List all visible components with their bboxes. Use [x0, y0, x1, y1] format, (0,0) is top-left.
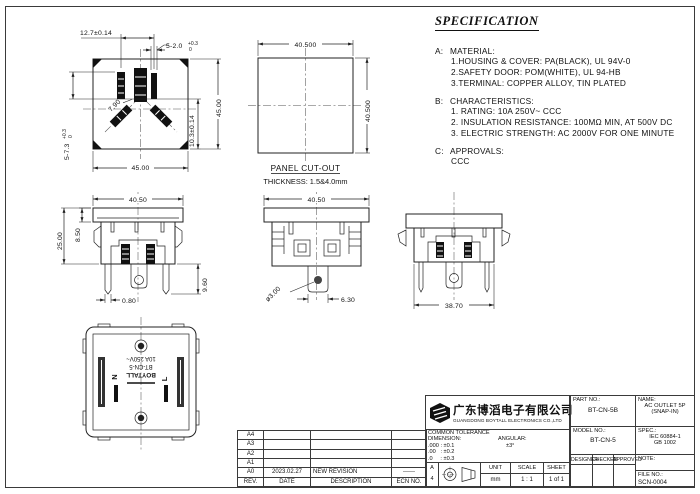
spec-section-b: B:CHARACTERISTICS: [435, 96, 691, 106]
spec-std-value-2: GB 1002 [636, 440, 694, 446]
date-cell [264, 449, 311, 458]
spec-heading-c: APPROVALS: [450, 146, 504, 156]
file-no-cell: FILE NO.: SCN-0004 [635, 470, 695, 487]
dim-label: 45.00 [131, 165, 149, 172]
dim-label: 8.50 [75, 228, 82, 242]
ecn-cell [392, 458, 427, 467]
rev-cell: A0 [238, 468, 264, 477]
specification-block: SPECIFICATION A:MATERIAL: 1.HOUSING & CO… [435, 12, 691, 167]
file-no-value: SCN-0004 [636, 478, 694, 486]
company-logo-icon [429, 402, 451, 424]
tolerance-cell: COMMON TOLERANCE DIMENSION:ANGULAR: .000… [425, 429, 570, 463]
rev-cell: A2 [238, 449, 264, 458]
model-no-value: BT-CN-5 [571, 437, 635, 444]
revision-table: A4 A3 A2 A1 A02023.02.27NEW REVISION----… [237, 430, 427, 487]
part-no-cell: PART NO.: BT-CN-5B [570, 395, 636, 427]
rating-marking: 10A 250V~ [126, 355, 156, 361]
model-no-cell: MODEL NO.: BT-CN-5 [570, 426, 636, 455]
signoff-cell: DESIGNER CHECKED APPROVED [570, 454, 636, 487]
rev-header: REV. [238, 477, 264, 486]
spec-item: 3.TERMINAL: COPPER ALLOY, TIN PLATED [451, 78, 691, 89]
dim-label: 40.50 [307, 197, 325, 204]
table-header-row: REV.DATEDESCRIPTIONECN NO. [238, 477, 427, 486]
tol-row-1: .000 : ±0.1 [428, 443, 454, 449]
divider [592, 465, 593, 486]
dim-label: 7.90 [107, 99, 122, 114]
dim-tolerance: 0 [189, 47, 192, 53]
dimension-label: DIMENSION: [428, 436, 461, 442]
dim-label: 5-7.3 [64, 143, 71, 160]
specification-title: SPECIFICATION [435, 14, 539, 31]
unit-label: UNIT [481, 463, 510, 474]
panel-cutout-label: PANEL CUT-OUT [271, 164, 341, 173]
part-no-label: PART NO.: [571, 396, 635, 403]
unit-value: mm [481, 474, 510, 486]
spec-label-c: C: [435, 146, 450, 156]
dim-label: 45.00 [216, 99, 223, 117]
spec-heading-b: CHARACTERISTICS: [450, 96, 534, 106]
date-header: DATE [264, 477, 311, 486]
checked-label: CHECKED [592, 455, 614, 465]
front-view-drawing: 12.7±0.14 5-2.0 +0.3 0 5-7.3 +0.3 0 10.3… [35, 16, 260, 194]
desc-cell [311, 458, 392, 467]
panel-cutout-drawing: 40.500 40.500 PANEL CUT-OUT THICKNESS: 1… [243, 28, 388, 190]
dim-tolerance: 0 [68, 135, 74, 138]
paper-size-top: A [426, 463, 438, 474]
company-cell: 广东博滔电子有限公司 GUANGDONG BOYTALL ELECTRONICS… [425, 395, 570, 430]
paper-size-bottom: 4 [426, 474, 438, 485]
desc-cell [311, 431, 392, 440]
ecn-cell: ------ [392, 468, 427, 477]
ecn-cell [392, 449, 427, 458]
projection-cell [438, 462, 481, 487]
spec-section-c: C:APPROVALS: [435, 146, 691, 156]
spec-std-cell: SPEC.: IEC 60884-1 GB 1002 [635, 426, 695, 455]
table-row: A4 [238, 431, 427, 440]
date-cell [264, 458, 311, 467]
dim-label: 25.00 [57, 232, 64, 250]
spec-label-a: A: [435, 46, 450, 56]
table-row: A2 [238, 449, 427, 458]
sheet-label: SHEET [544, 463, 569, 474]
model-marking: BT-CN-5 [129, 363, 153, 369]
paper-size-cell: A 4 [425, 462, 439, 487]
side-view-back: 38.70 [388, 190, 523, 324]
scale-label: SCALE [511, 463, 543, 474]
spec-item: 2. INSULATION RESISTANCE: 100MΩ MIN, AT … [451, 117, 691, 128]
date-cell: 2023.02.27 [264, 468, 311, 477]
ecn-cell [392, 431, 427, 440]
dim-label: 40.500 [295, 42, 317, 49]
note-cell: NOTE: [635, 454, 695, 471]
dim-label: 5-2.0 [166, 43, 183, 50]
designer-label: DESIGNER [571, 455, 593, 465]
side-view-front: 40.50 8.50 25.00 9.60 0.80 [35, 190, 230, 320]
angular-value: ±3° [506, 443, 514, 449]
dim-label: 38.70 [445, 303, 463, 310]
spec-label-b: B: [435, 96, 450, 106]
part-no-value: BT-CN-5B [571, 407, 635, 414]
title-block: 广东博滔电子有限公司 GUANGDONG BOYTALL ELECTRONICS… [425, 395, 695, 487]
sheet-cell: SHEET 1 of 1 [543, 462, 570, 487]
scale-cell: SCALE 1 : 1 [510, 462, 544, 487]
sheet-value: 1 of 1 [544, 474, 569, 486]
spec-item: 1. RATING: 10A 250V~ CCC [451, 106, 691, 117]
ecn-cell [392, 440, 427, 449]
spec-item: CCC [451, 156, 691, 167]
dim-label: ø3.00 [264, 285, 282, 303]
dim-label: 10.3±0.14 [189, 115, 196, 147]
name-label: NAME: [636, 396, 694, 403]
dim-label: 0.80 [122, 298, 136, 305]
live-marking: L [160, 376, 169, 381]
date-cell [264, 440, 311, 449]
dim-label: 40.500 [365, 100, 372, 122]
desc-header: DESCRIPTION [311, 477, 392, 486]
file-no-label: FILE NO.: [636, 471, 694, 478]
back-markings: BOYTALL BT-CN-5 10A 250V~ [126, 355, 156, 378]
table-row: A02023.02.27NEW REVISION------ [238, 468, 427, 477]
rev-cell: A1 [238, 458, 264, 467]
desc-cell [311, 449, 392, 458]
back-view-drawing: BOYTALL BT-CN-5 10A 250V~ N L [70, 315, 218, 453]
dim-label: 9.60 [202, 278, 209, 292]
spec-heading-a: MATERIAL: [450, 46, 495, 56]
approved-label: APPROVED [613, 455, 635, 465]
model-no-label: MODEL NO.: [571, 427, 635, 434]
rev-cell: A4 [238, 431, 264, 440]
scale-value: 1 : 1 [511, 474, 543, 486]
panel-thickness-label: THICKNESS: 1.5&4.0mm [263, 177, 347, 186]
side-view-right: 40.50 ø3.00 6.30 [232, 190, 394, 324]
dim-label: 6.30 [341, 297, 355, 304]
company-name-cn: 广东博滔电子有限公司 [453, 402, 573, 418]
projection-symbol-icon [440, 464, 480, 485]
spec-item: 1.HOUSING & COVER: PA(BLACK), UL 94V-0 [451, 56, 691, 67]
company-names: 广东博滔电子有限公司 GUANGDONG BOYTALL ELECTRONICS… [453, 402, 573, 423]
table-row: A3 [238, 440, 427, 449]
rev-cell: A3 [238, 440, 264, 449]
date-cell [264, 431, 311, 440]
spec-item: 3. ELECTRIC STRENGTH: AC 2000V FOR ONE M… [451, 128, 691, 139]
dim-label: 12.7±0.14 [80, 30, 112, 37]
unit-cell: UNIT mm [480, 462, 511, 487]
company-name-en: GUANGDONG BOYTALL ELECTRONICS CO.,LTD [453, 418, 573, 423]
desc-cell: NEW REVISION [311, 468, 392, 477]
neutral-marking: N [110, 374, 119, 379]
desc-cell [311, 440, 392, 449]
brand-marking: BOYTALL [126, 371, 156, 378]
name-cell: NAME: AC OUTLET 5P (SNAP-IN) [635, 395, 695, 427]
drawing-sheet: 12.7±0.14 5-2.0 +0.3 0 5-7.3 +0.3 0 10.3… [0, 0, 700, 494]
spec-std-label: SPEC.: [636, 427, 694, 434]
spec-section-a: A:MATERIAL: [435, 46, 691, 56]
dim-label: 40.50 [129, 197, 147, 204]
name-value-2: (SNAP-IN) [636, 409, 694, 415]
ecn-header: ECN NO. [392, 477, 427, 486]
divider [613, 465, 614, 486]
note-label: NOTE: [636, 455, 694, 462]
spec-item: 2.SAFETY DOOR: POM(WHITE), UL 94-HB [451, 67, 691, 78]
table-row: A1 [238, 458, 427, 467]
